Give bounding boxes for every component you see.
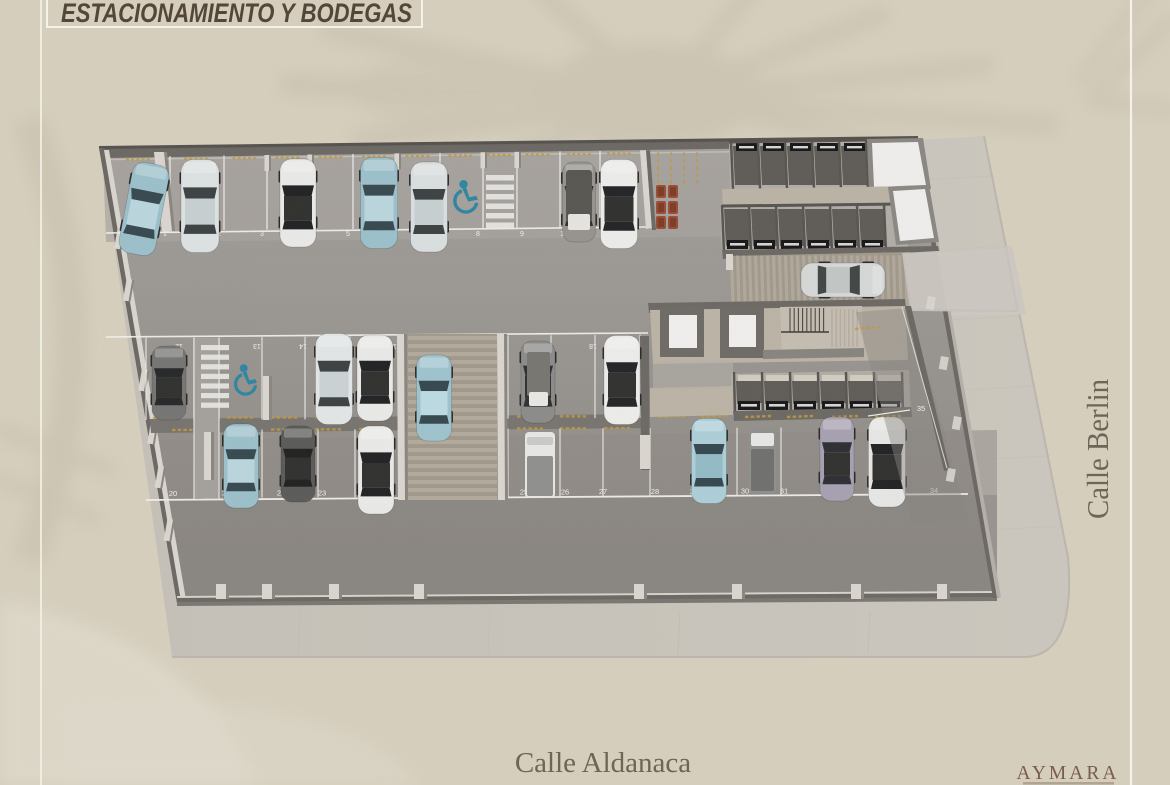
svg-text:ESTACIONAMIENTO Y BODEGAS: ESTACIONAMIENTO Y BODEGAS (61, 0, 412, 28)
svg-text:AYMARA: AYMARA (1017, 763, 1120, 784)
svg-text:Calle Berlin: Calle Berlin (1080, 379, 1115, 519)
svg-text:Calle Aldanaca: Calle Aldanaca (515, 747, 691, 779)
